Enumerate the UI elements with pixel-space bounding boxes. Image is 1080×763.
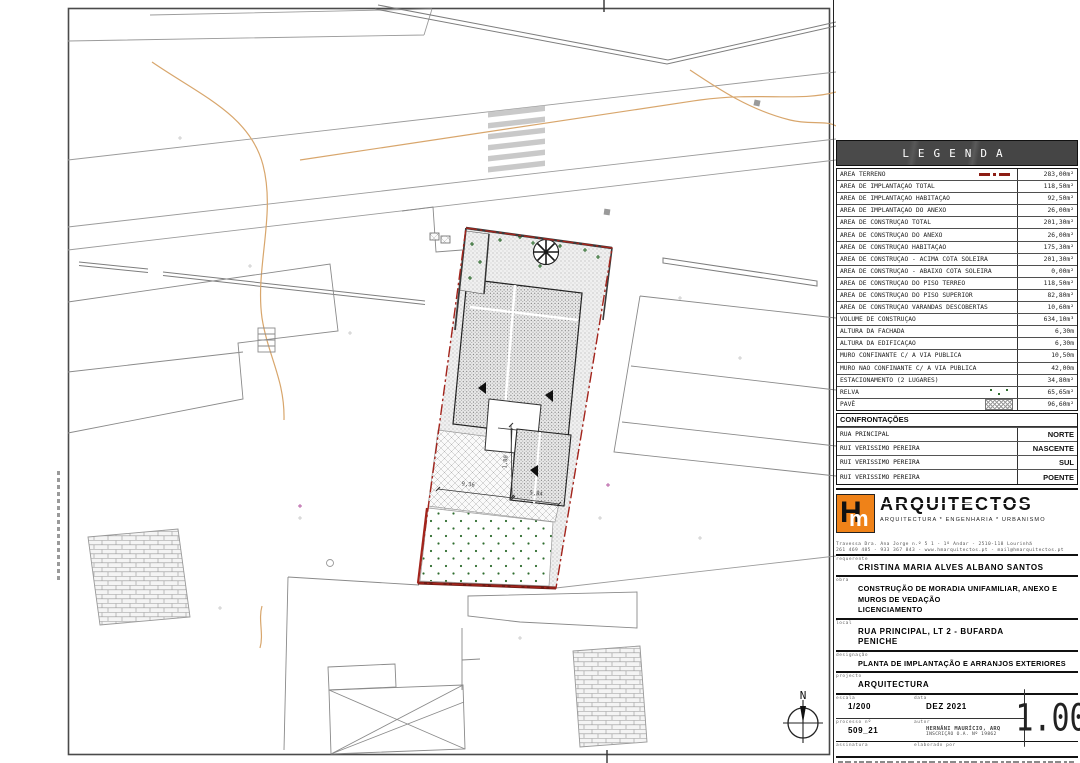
autor-cell: autor HERNÂNI MAURÍCIO, ARQ INSCRIÇÃO O.… (914, 718, 1024, 741)
drawing-sheet: 9,36 5,84 1,80 N LEGENDA ÁREA TERRENO283… (0, 0, 1080, 763)
table-row: VOLUME DE CONSTRUÇÃO634,10m³ (837, 313, 1077, 325)
table-row: RUI VERISSIMO PEREIRANASCENTE (837, 441, 1077, 455)
requerente-value: CRISTINA MARIA ALVES ALBANO SANTOS (836, 563, 1078, 574)
firm-name: ARQUITECTOS (880, 494, 1078, 514)
table-row: RUA PRINCIPALNORTE (837, 427, 1077, 441)
table-row: ÁREA DE CONSTRUÇÃO DO PISO TÉRREO118,50m… (837, 277, 1077, 289)
table-row: ÁREA DE CONSTRUÇÃO DO PISO SUPERIOR82,80… (837, 289, 1077, 301)
site-plan-drawing: 9,36 5,84 1,80 N (0, 0, 836, 763)
table-row: RUI VERISSIMO PEREIRAPOENTE (837, 469, 1077, 483)
table-row: ÁREA TERRENO283,00m² (837, 169, 1077, 180)
table-row: ALTURA DA FACHADA6,30m (837, 325, 1077, 337)
tree-icon (534, 240, 559, 265)
firm-block: H m ARQUITECTOS ARQUITECTURA * ENGENHARI… (836, 488, 1078, 540)
firm-tagline: ARQUITECTURA * ENGENHARIA * URBANISMO (880, 517, 1078, 523)
table-row: MURO NÃO CONFINANTE C/ A VIA PÚBLICA42,0… (837, 362, 1077, 374)
sheet-title: PLANTA DE IMPLANTAÇÃO E ARRANJOS EXTERIO… (836, 659, 1078, 670)
designacao-section: designação PLANTA DE IMPLANTAÇÃO E ARRAN… (836, 650, 1078, 672)
processo-cell: processo nº 509_21 (836, 718, 914, 741)
table-row: RELVA65,65m² (837, 386, 1077, 398)
table-row: ALTURA DA EDIFICAÇÃO6,30m (837, 337, 1077, 349)
table-row: ÁREA DE CONSTRUÇÃO - ACIMA COTA SOLEIRA2… (837, 253, 1077, 265)
escala-cell: escala 1/200 (836, 695, 914, 718)
sheet-number: 1.00 (1024, 689, 1078, 747)
confrontacoes-header: CONFRONTAÇÕES (837, 414, 1077, 427)
property-lot: 9,36 5,84 1,80 (418, 228, 612, 588)
table-row: ÁREA DE CONSTRUÇÃO HABITAÇÃO175,30m² (837, 241, 1077, 253)
crosswalk (488, 106, 545, 173)
table-row: PAVÊ96,60m² (837, 398, 1077, 410)
local-section: local RUA PRINCIPAL, LT 2 - BUFARDA PENI… (836, 618, 1078, 650)
disclaimer-text (836, 756, 1078, 763)
table-row: ÁREA DE CONSTRUÇÃO DO ANEXO26,00m² (837, 228, 1077, 240)
table-row: ÁREA DE CONSTRUÇÃO TOTAL201,30m² (837, 216, 1077, 228)
obra-section: obra CONSTRUÇÃO DE MORADIA UNIFAMILIAR, … (836, 575, 1078, 618)
firm-address: Travessa Dra. Ana Jorge n.º 5 1 - 1º And… (836, 542, 1078, 554)
table-row: ESTACIONAMENTO (2 LUGARES)34,80m² (837, 374, 1077, 386)
confrontacoes-table: CONFRONTAÇÕES RUA PRINCIPALNORTE RUI VER… (836, 413, 1078, 485)
terreno-line-symbol (979, 173, 1013, 175)
table-row: ÁREA DE CONSTRUÇÃO - ABAIXO COTA SOLEIRA… (837, 265, 1077, 277)
table-row: ÁREA DE IMPLANTAÇÃO HABITAÇÃO92,50m² (837, 192, 1077, 204)
legend-table: ÁREA TERRENO283,00m² ÁREA DE IMPLANTAÇÃO… (836, 168, 1078, 411)
requerente-section: requerente CRISTINA MARIA ALVES ALBANO S… (836, 554, 1078, 576)
table-row: MURO CONFINANTE C/ A VIA PÚBLICA10,50m (837, 349, 1077, 361)
table-row: ÁREA DE CONSTRUÇÃO VARANDAS DESCOBERTAS1… (837, 301, 1077, 313)
table-row: RUI VERISSIMO PEREIRASUL (837, 455, 1077, 469)
boundary-walls (79, 5, 836, 305)
north-label: N (800, 689, 807, 702)
relva-symbol (987, 388, 1013, 396)
number-grid: escala 1/200 data DEZ 2021 1.00 processo… (836, 693, 1078, 741)
pave-symbol (985, 399, 1013, 410)
north-compass-icon: N (783, 689, 823, 743)
legend-header: LEGENDA (836, 140, 1078, 166)
relva-area (420, 508, 553, 586)
column-divider (833, 0, 834, 763)
table-row: ÁREA DE IMPLANTAÇÃO DO ANEXO26,00m² (837, 204, 1077, 216)
data-cell: data DEZ 2021 (914, 695, 1024, 718)
title-block: LEGENDA ÁREA TERRENO283,00m² ÁREA DE IMP… (836, 0, 1078, 763)
hm-logo: H m (836, 494, 875, 533)
table-row: ÁREA DE IMPLANTAÇÃO TOTAL118,50m² (837, 180, 1077, 192)
margin-filepath-text (57, 470, 60, 580)
